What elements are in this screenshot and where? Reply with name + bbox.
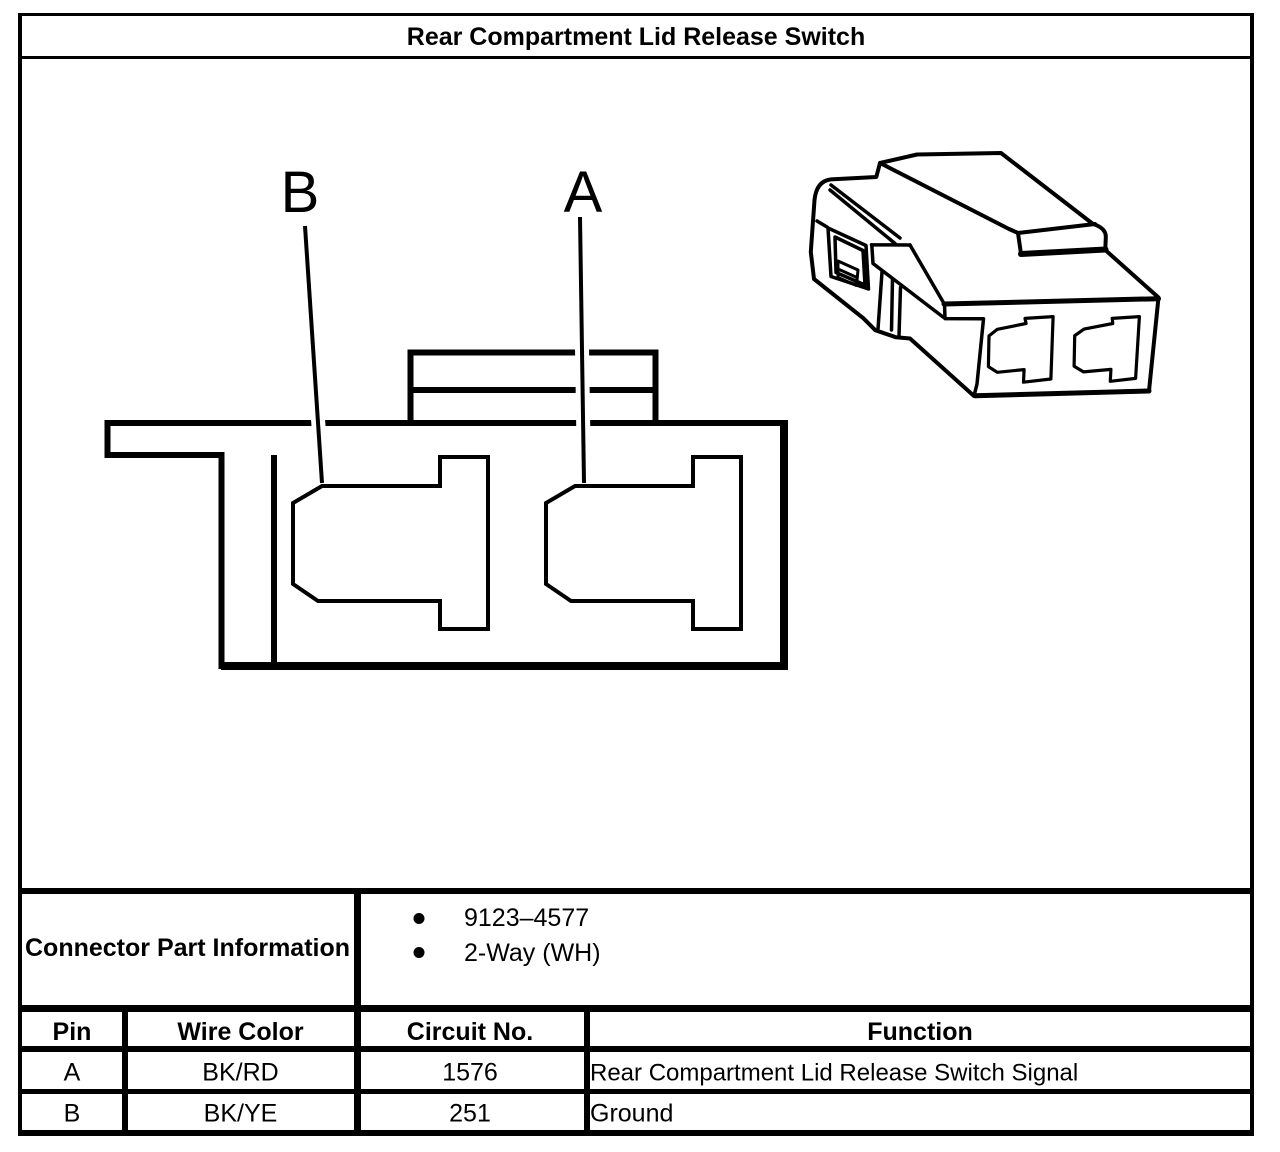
svg-text:9123–4577: 9123–4577 xyxy=(464,904,589,932)
svg-text:Circuit No.: Circuit No. xyxy=(407,1018,533,1046)
svg-text:2-Way (WH): 2-Way (WH) xyxy=(464,939,601,967)
svg-text:Connector Part Information: Connector Part Information xyxy=(25,934,350,962)
svg-text:Rear Compartment Lid Release S: Rear Compartment Lid Release Switch xyxy=(407,23,865,51)
svg-text:Function: Function xyxy=(867,1018,973,1046)
svg-text:A: A xyxy=(64,1059,81,1087)
svg-text:Pin: Pin xyxy=(53,1018,92,1046)
svg-text:A: A xyxy=(564,160,603,225)
svg-text:Ground: Ground xyxy=(590,1100,673,1128)
svg-text:Rear Compartment Lid Release S: Rear Compartment Lid Release Switch Sign… xyxy=(590,1060,1078,1087)
svg-text:1576: 1576 xyxy=(442,1059,498,1087)
svg-text:251: 251 xyxy=(449,1100,491,1128)
svg-text:BK/RD: BK/RD xyxy=(202,1059,278,1087)
svg-text:BK/YE: BK/YE xyxy=(204,1100,278,1128)
svg-text:B: B xyxy=(64,1100,81,1128)
svg-text:Wire Color: Wire Color xyxy=(177,1018,303,1046)
svg-text:B: B xyxy=(281,160,320,225)
